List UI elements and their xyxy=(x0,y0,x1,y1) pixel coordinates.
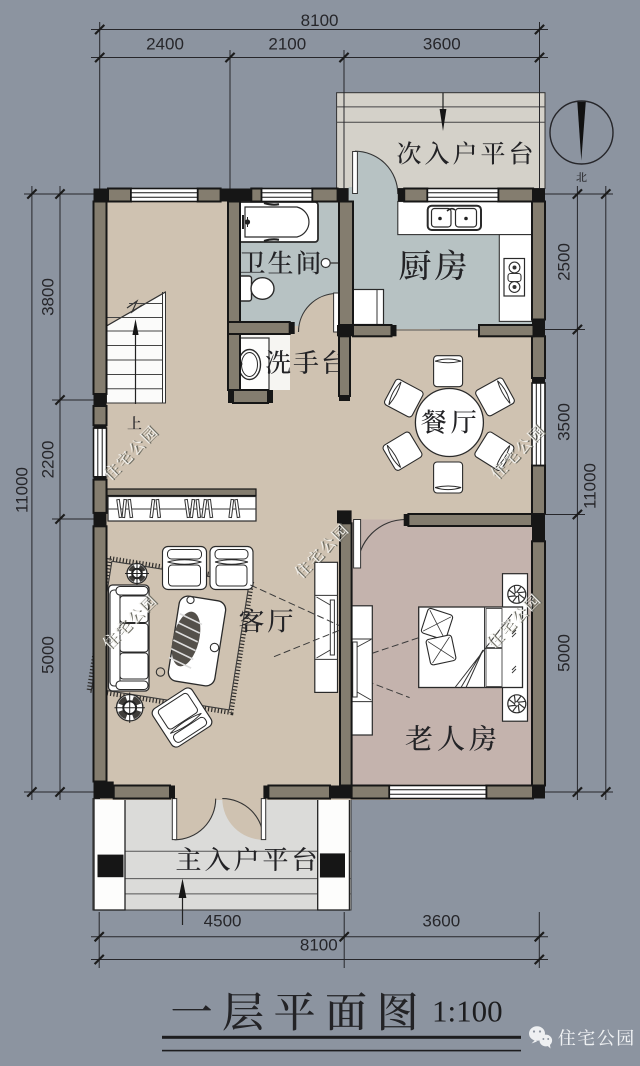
svg-text:2500: 2500 xyxy=(555,243,574,281)
svg-text:2200: 2200 xyxy=(39,441,58,479)
svg-text:2400: 2400 xyxy=(146,35,184,54)
svg-text:4500: 4500 xyxy=(204,912,242,931)
svg-text:3600: 3600 xyxy=(422,912,460,931)
svg-text:11000: 11000 xyxy=(581,463,600,509)
svg-text:8100: 8100 xyxy=(301,11,339,30)
svg-text:8100: 8100 xyxy=(300,936,338,955)
svg-text:3800: 3800 xyxy=(39,278,58,316)
svg-text:3500: 3500 xyxy=(555,403,574,441)
svg-text:1:100: 1:100 xyxy=(432,994,503,1029)
svg-text:2100: 2100 xyxy=(268,35,306,54)
svg-text:3600: 3600 xyxy=(423,35,461,54)
svg-text:11000: 11000 xyxy=(13,467,32,513)
svg-text:5000: 5000 xyxy=(555,634,574,672)
svg-text:5000: 5000 xyxy=(39,636,58,674)
